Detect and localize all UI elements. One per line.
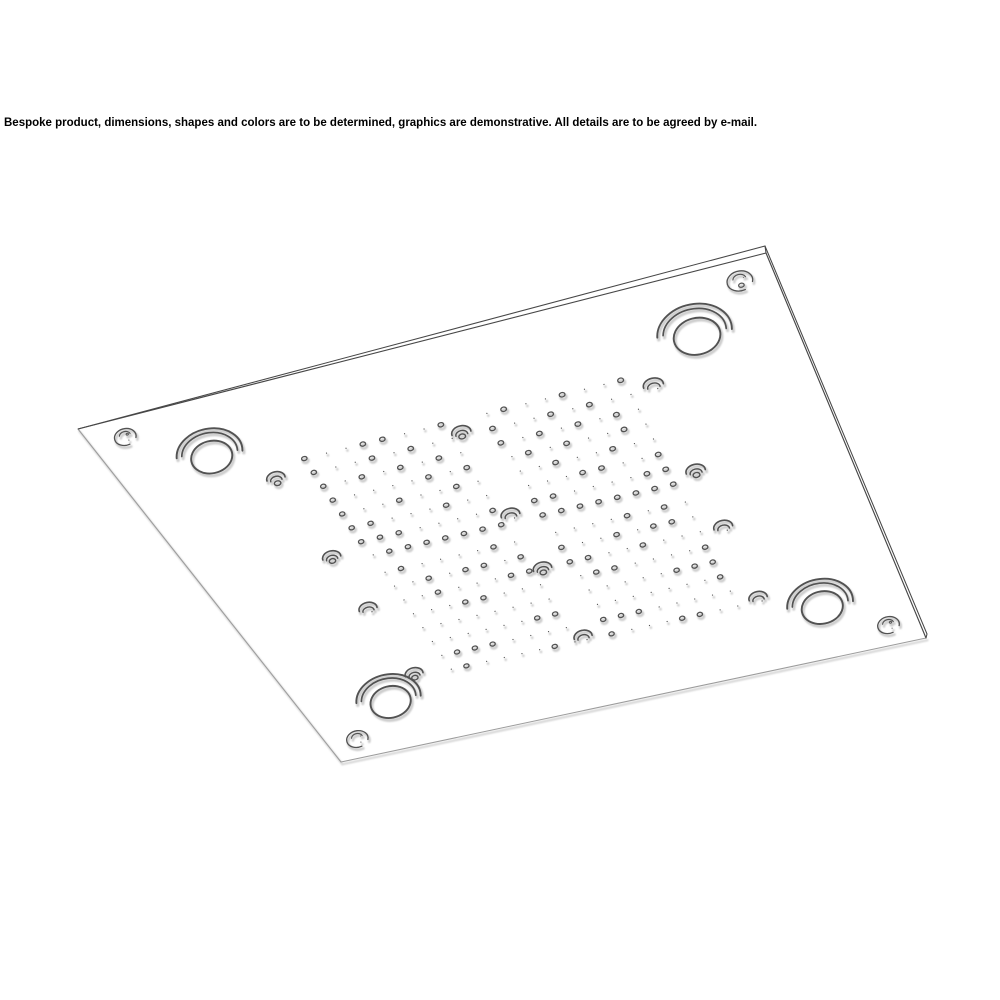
- panel-rim-corner: [926, 634, 927, 638]
- shower-panel-drawing: [0, 0, 1000, 1000]
- panel-face-layer: [78, 253, 926, 762]
- panel-face: [78, 253, 926, 762]
- product-image-page: Bespoke product, dimensions, shapes and …: [0, 0, 1000, 1000]
